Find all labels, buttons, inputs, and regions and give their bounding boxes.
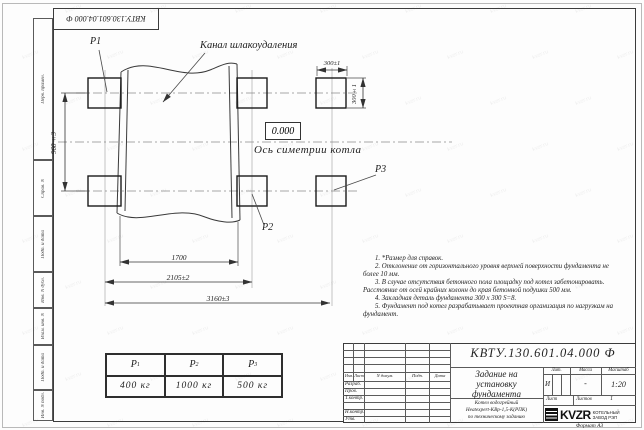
load-table-header-p2: P2 [165,354,224,376]
logo-word: KVZR [560,408,591,422]
dim-pad-height: 300±1 [351,79,358,109]
load-value-p2: 1000 кг [165,376,224,398]
column-axis-lines [105,68,332,306]
title-line-1: Задание на [450,369,543,379]
manufacturer-logo: KVZR КОТЕЛЬНЫЙ ЗАВОД РЭП [545,407,634,422]
drawing-sheet: Перв. примен. Справ. N Подп. и дата Инв.… [0,0,644,430]
note-5: 5. Фундамент под котел разрабатывает про… [363,303,617,319]
format-label: Формат А3 [543,423,636,429]
dim-960: 960±3 [50,124,58,162]
sig-prov: Пров. [345,389,357,394]
sheet-label: Лист [546,397,557,402]
dimension-lines [65,70,363,303]
dim-pad-width: 300±1 [310,60,354,67]
load-point-p1-label: P1 [90,36,101,47]
sig-tkontr: Т.контр. [345,396,363,401]
logo-caption-line-2: ЗАВОД РЭП [593,415,620,420]
p3-sub: 3 [254,362,257,368]
load-point-p3-label: P3 [375,164,386,175]
dim-3160: 3160±3 [193,294,243,303]
load-point-p2-label: P2 [262,222,273,233]
logo-caption: КОТЕЛЬНЫЙ ЗАВОД РЭП [593,410,620,420]
rev-col-data: Дата [430,373,450,378]
dim-2105: 2105±2 [153,273,203,282]
scale-label: Масштаб [601,368,636,373]
channel-label: Канал шлакоудаления [200,40,297,51]
note-2: 2. Отклонение от горизонтального уровня … [363,263,617,279]
rev-col-list: Лист [353,373,365,378]
notes-block: 1. *Размер для справок. 2. Отклонение от… [363,255,617,319]
sheets-label: Листов [576,397,592,402]
sheets-value: 1 [610,396,613,402]
load-value-p3: 500 кг [223,376,282,398]
dim-1700: 1700 [159,253,199,262]
boiler-break-outline [117,63,240,222]
note-1: 1. *Размер для справок. [363,255,617,263]
note-4: 4. Закладная деталь фундамента 300 x 300… [363,295,617,303]
mass-label: Масса [570,368,601,373]
elevation-value: 0.000 [272,126,295,137]
load-table-header-p1: P1 [106,354,165,376]
load-table-header-p3: P3 [223,354,282,376]
mass-value: - [570,379,601,388]
sig-utv: Утв. [345,417,355,422]
subtitle-line-3: по техническому заданию [450,414,543,420]
extension-lines [61,66,366,266]
note-3: 3. В случае отсутствия бетонного пола пл… [363,279,617,295]
subtitle-line-2: Heatexpert-КВр-1,5-К(РПК) [450,407,543,413]
load-value-p1: 400 кг [106,376,165,398]
title-line-2: установку [450,379,543,389]
lit-value: И [543,380,552,388]
logo-caption-line-1: КОТЕЛЬНЫЙ [593,410,620,415]
title-block-doc-number: КВТУ.130.601.04.000 Ф [450,346,636,361]
lit-label: Лит. [543,368,570,373]
p2-sub: 2 [196,362,199,368]
title-line-3: фундамента [450,389,543,399]
boiler-logo-icon [545,408,558,421]
p1-sub: 1 [137,362,140,368]
rev-col-docnum: N докум. [365,373,405,378]
sig-nkontr: Н.контр. [345,410,364,415]
subtitle-line-1: Котел водогрейный [450,400,543,406]
sig-razrab: Разраб. [345,382,361,387]
scale-value: 1:20 [601,380,636,389]
symmetry-axis-label: Ось симетрии котла [254,144,362,156]
rev-col-podp: Подп. [406,373,429,378]
elevation-mark: 0.000 [265,122,301,140]
load-table: P1 P2 P3 400 кг 1000 кг 500 кг [105,353,283,398]
